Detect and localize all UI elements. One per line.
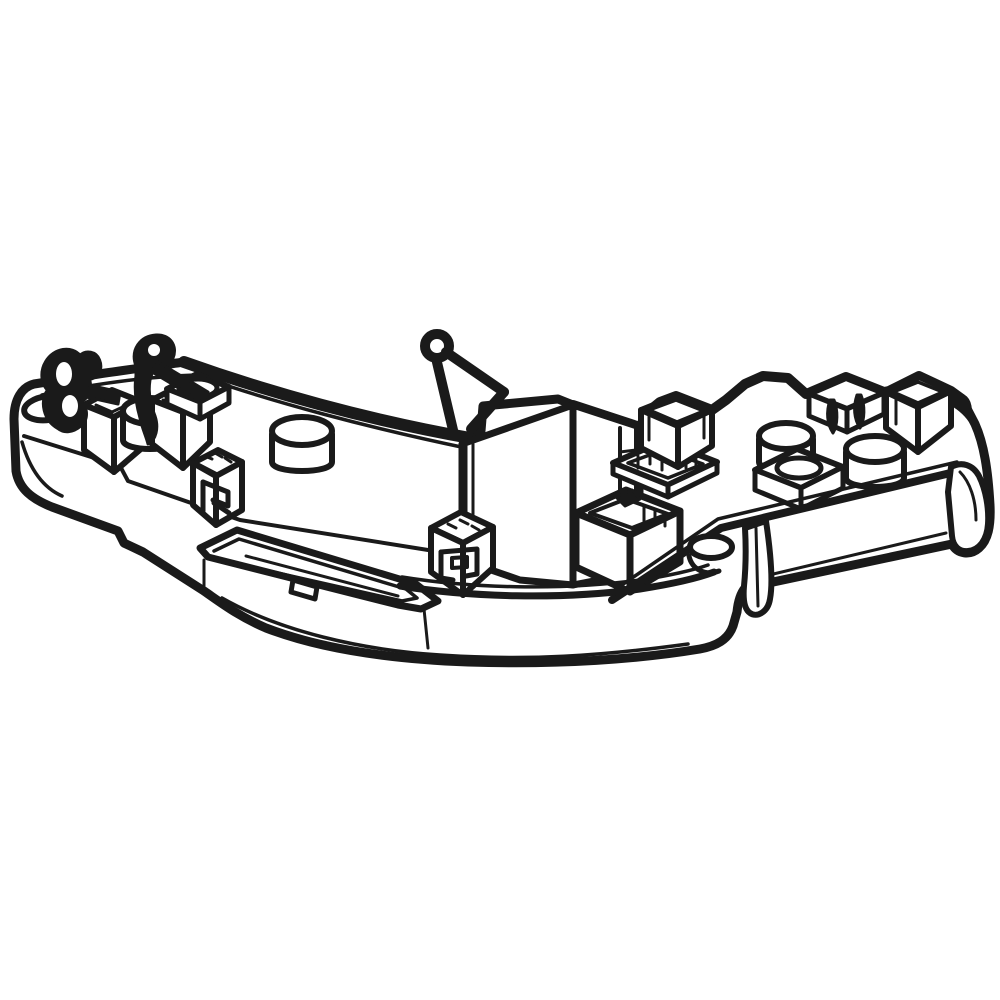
snap-clip-center xyxy=(744,521,772,615)
technical-drawing: Isometric technical line drawing of a cu… xyxy=(0,0,1000,1000)
figure-canvas: Isometric technical line drawing of a cu… xyxy=(0,0,1000,1000)
clip-finger xyxy=(828,400,837,433)
keyed-socket-left xyxy=(193,450,242,525)
round-boss-right-rear xyxy=(846,436,904,487)
clip-finger xyxy=(855,395,864,428)
snap-clip-right xyxy=(948,464,988,551)
round-boss-left xyxy=(272,417,332,471)
